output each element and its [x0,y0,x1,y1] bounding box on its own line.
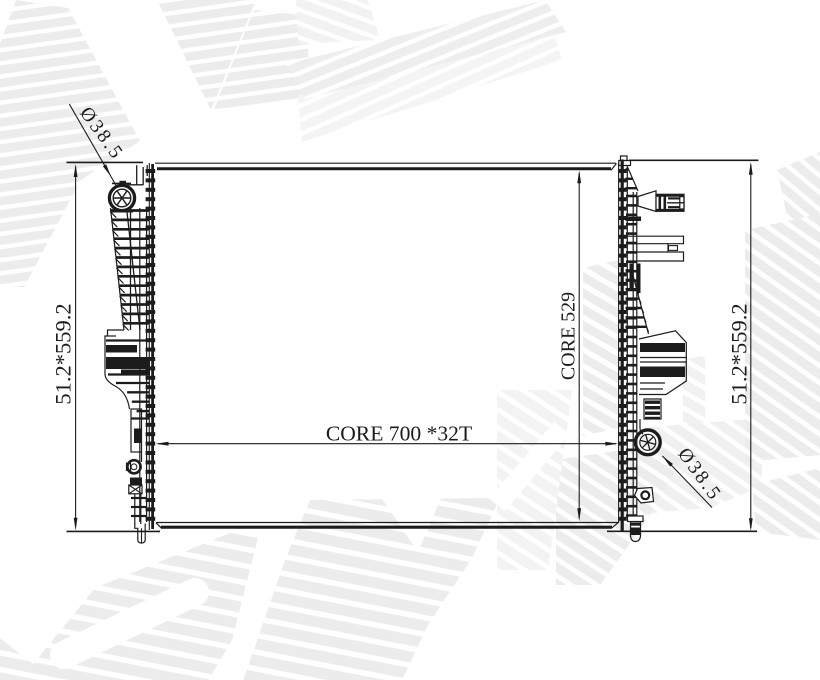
svg-text:51.2*559.2: 51.2*559.2 [51,303,76,404]
svg-text:CORE 529: CORE 529 [558,292,580,380]
svg-text:CORE 700 *32T: CORE 700 *32T [326,422,472,446]
svg-text:51.2*559.2: 51.2*559.2 [727,303,752,404]
